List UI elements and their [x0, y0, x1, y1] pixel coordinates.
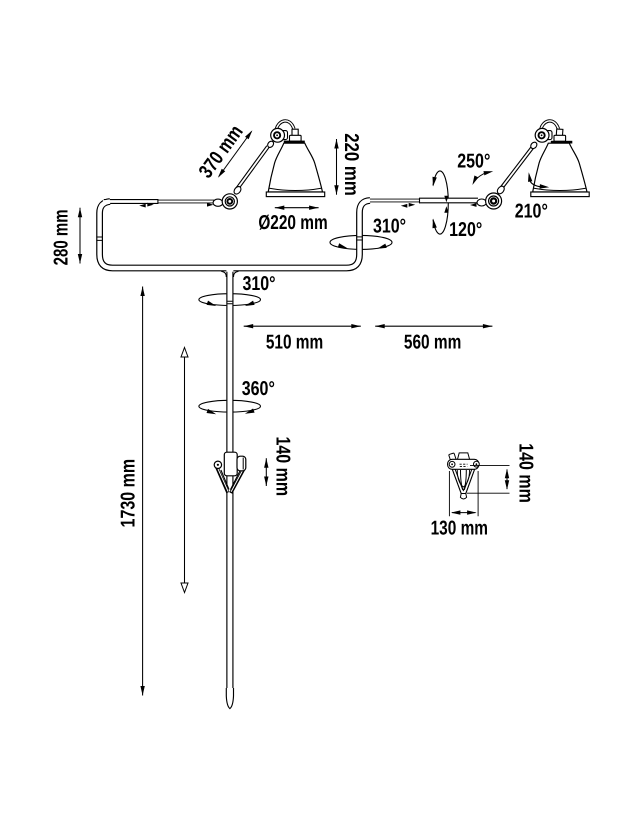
svg-text:310°: 310° — [373, 216, 406, 238]
svg-text:140 mm: 140 mm — [515, 443, 537, 503]
svg-text:Ø220 mm: Ø220 mm — [258, 212, 327, 234]
svg-text:130 mm: 130 mm — [431, 518, 488, 540]
svg-text:510 mm: 510 mm — [266, 332, 323, 354]
svg-text:220 mm: 220 mm — [340, 133, 362, 196]
svg-text:560 mm: 560 mm — [404, 332, 461, 354]
svg-text:360°: 360° — [242, 378, 275, 400]
svg-text:140 mm: 140 mm — [271, 437, 293, 497]
svg-text:1730 mm: 1730 mm — [118, 459, 140, 528]
svg-text:280 mm: 280 mm — [51, 209, 73, 265]
svg-text:250°: 250° — [457, 151, 490, 173]
svg-text:310°: 310° — [242, 273, 275, 295]
svg-text:120°: 120° — [449, 219, 482, 241]
svg-text:210°: 210° — [515, 200, 548, 222]
